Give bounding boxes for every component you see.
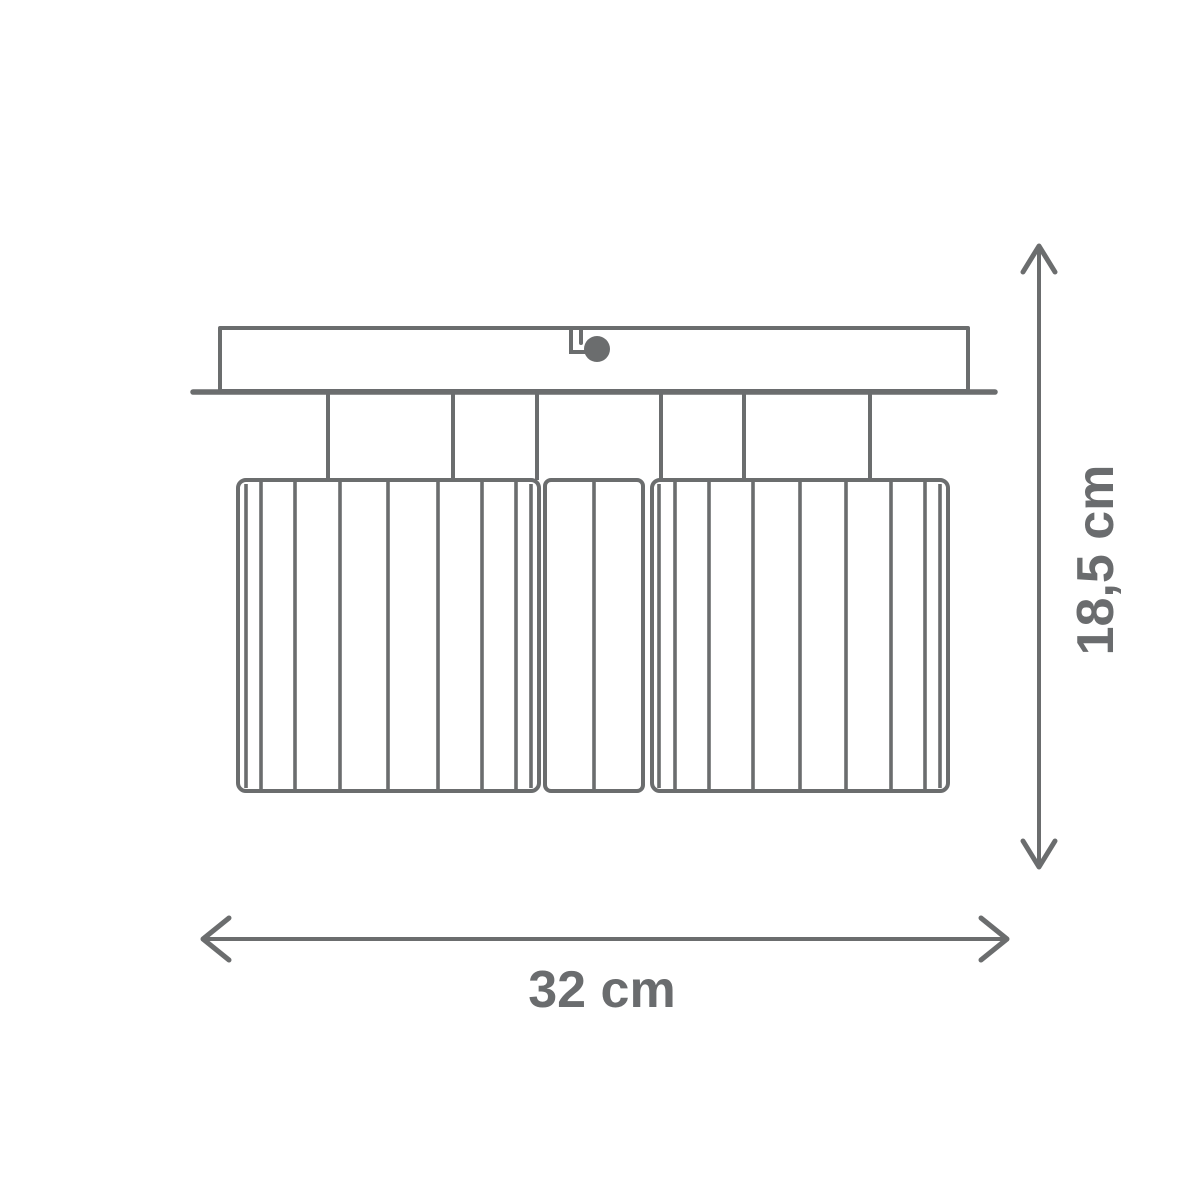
cable-knob-icon bbox=[584, 336, 610, 362]
lamp-technical-drawing: 18,5 cm 32 cm bbox=[0, 0, 1200, 1200]
width-dimension-label: 32 cm bbox=[528, 961, 675, 1019]
height-dimension-label: 18,5 cm bbox=[1067, 465, 1125, 656]
lampshade-left bbox=[238, 480, 539, 791]
height-dimension: 18,5 cm bbox=[1023, 246, 1125, 867]
lampshade-right bbox=[652, 480, 948, 791]
socket-stems bbox=[328, 392, 870, 480]
width-dimension: 32 cm bbox=[203, 918, 1007, 1019]
lampshade-middle bbox=[545, 480, 643, 791]
ceiling-canopy bbox=[193, 328, 995, 392]
dimension-diagram: 18,5 cm 32 cm bbox=[0, 0, 1200, 1200]
